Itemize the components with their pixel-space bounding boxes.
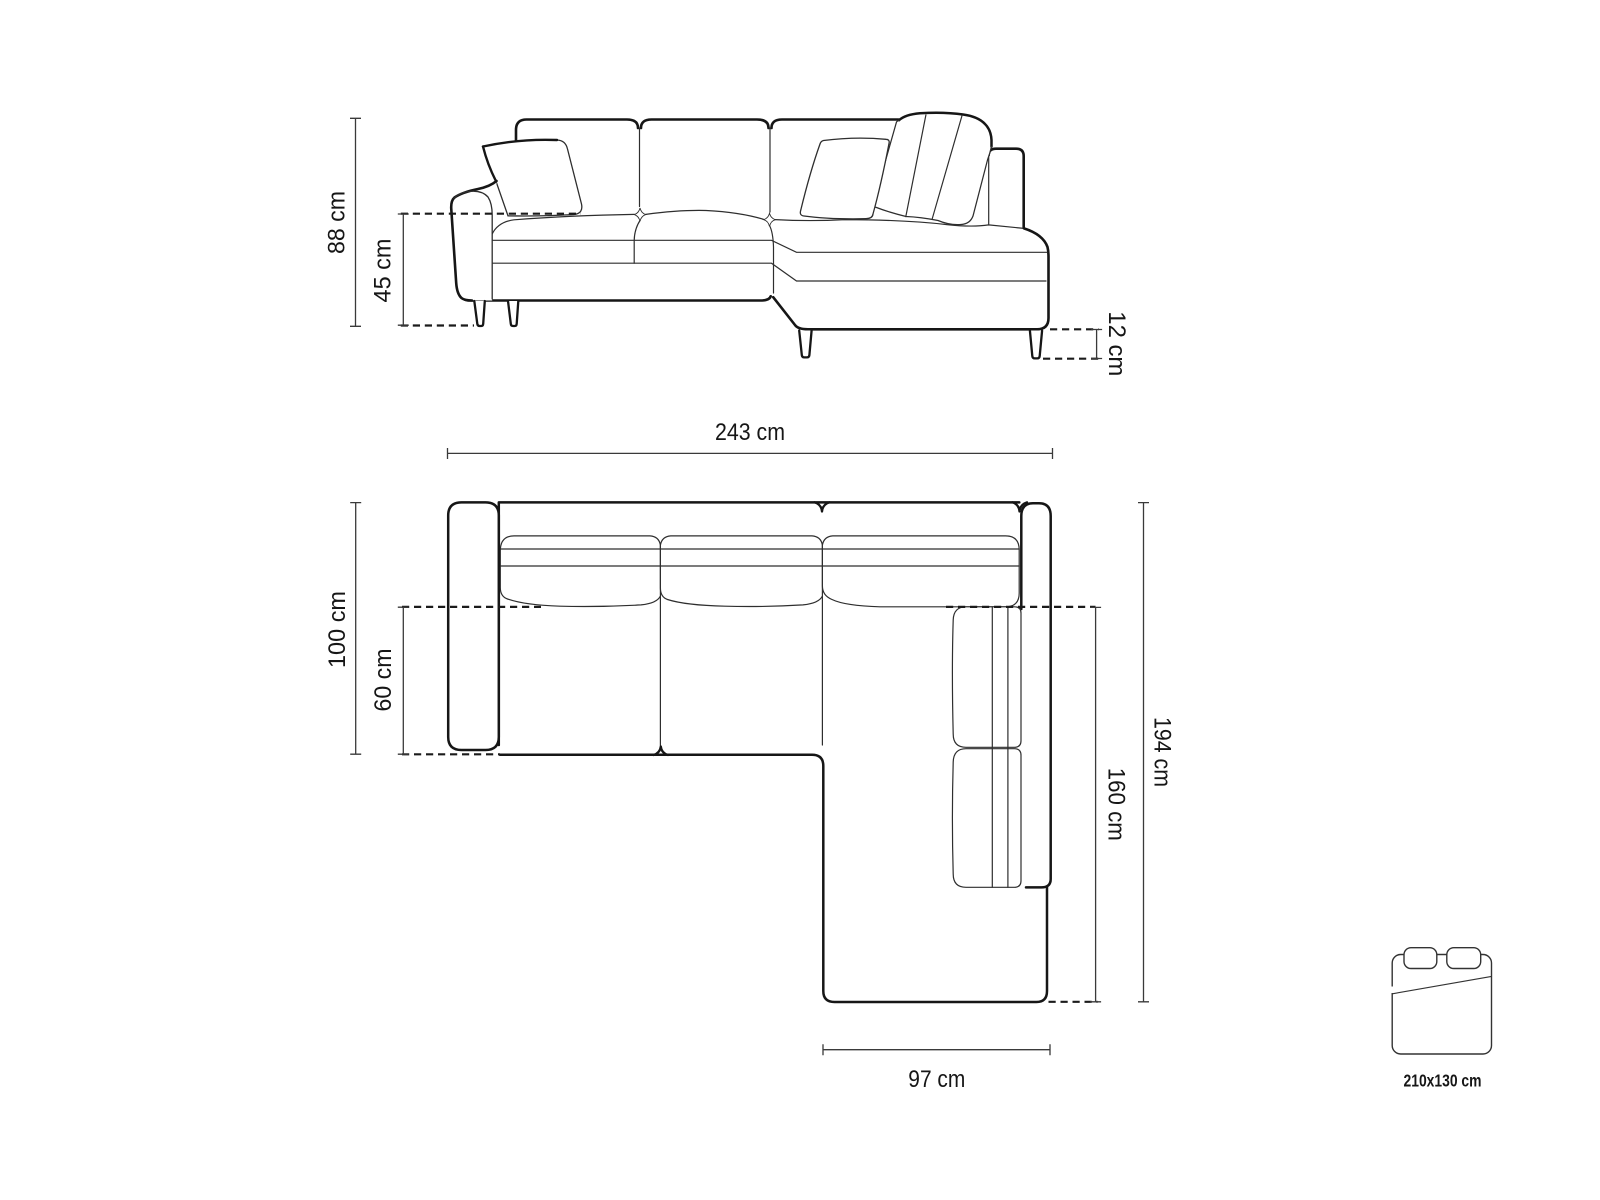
svg-text:194 cm: 194 cm [1148, 717, 1175, 787]
svg-text:45 cm: 45 cm [370, 239, 397, 303]
svg-text:97 cm: 97 cm [908, 1066, 965, 1093]
svg-text:160 cm: 160 cm [1103, 768, 1130, 841]
svg-text:60 cm: 60 cm [370, 649, 397, 712]
svg-text:243 cm: 243 cm [715, 419, 785, 446]
svg-text:12 cm: 12 cm [1103, 311, 1130, 376]
svg-text:88 cm: 88 cm [323, 191, 350, 254]
svg-text:100 cm: 100 cm [324, 591, 351, 668]
svg-text:210x130 cm: 210x130 cm [1404, 1071, 1482, 1091]
